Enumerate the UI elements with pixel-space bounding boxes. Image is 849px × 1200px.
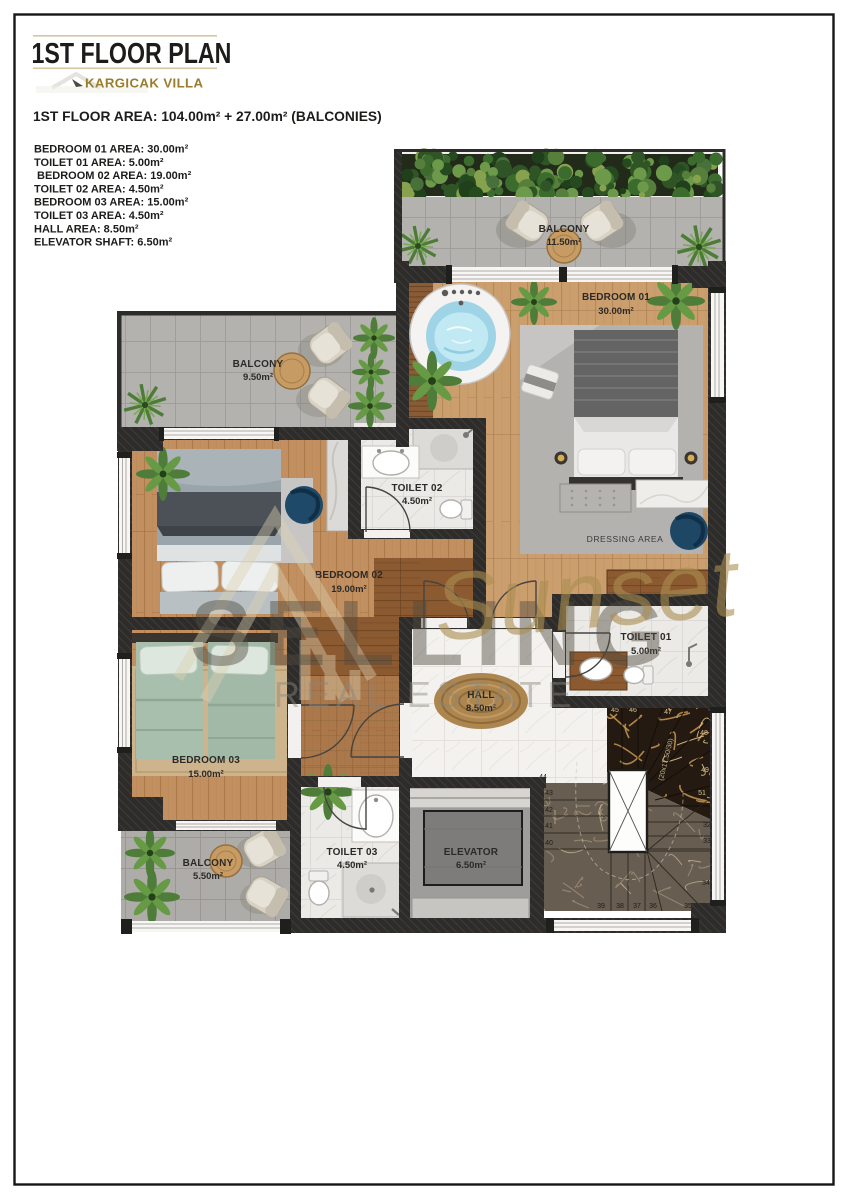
svg-text:BALCONY: BALCONY [183,858,234,869]
svg-text:4.50m²: 4.50m² [337,860,367,871]
svg-text:40: 40 [545,840,553,847]
svg-text:42: 42 [545,807,553,814]
svg-text:46: 46 [629,707,637,714]
svg-text:TOILET 02 AREA: 4.50m²: TOILET 02 AREA: 4.50m² [34,183,164,195]
svg-text:36: 36 [649,903,657,910]
svg-text:34: 34 [702,880,710,887]
svg-text:11.50m²: 11.50m² [547,237,582,248]
svg-text:37: 37 [633,903,641,910]
svg-text:BEDROOM 03: BEDROOM 03 [172,755,240,766]
svg-text:45: 45 [611,707,619,714]
svg-text:38: 38 [616,903,624,910]
svg-text:HALL AREA: 8.50m²: HALL AREA: 8.50m² [34,223,139,235]
svg-text:TOILET 01 AREA: 5.00m²: TOILET 01 AREA: 5.00m² [34,157,164,169]
svg-text:1ST FLOOR PLAN: 1ST FLOOR PLAN [32,37,232,70]
svg-text:51: 51 [698,790,706,797]
svg-text:TOILET 03: TOILET 03 [326,847,377,858]
svg-text:39: 39 [597,903,605,910]
svg-text:49: 49 [701,767,709,774]
svg-text:BEDROOM 01: BEDROOM 01 [582,292,650,303]
svg-text:9.50m²: 9.50m² [243,372,273,383]
svg-text:32: 32 [703,822,711,829]
svg-text:5.50m²: 5.50m² [193,871,223,882]
svg-text:BEDROOM 02 AREA: 19.00m²: BEDROOM 02 AREA: 19.00m² [37,170,192,182]
svg-text:6.50m²: 6.50m² [456,860,486,871]
svg-text:35: 35 [684,903,692,910]
svg-text:TOILET 02: TOILET 02 [391,483,442,494]
svg-text:33: 33 [703,838,711,845]
svg-text:15.00m²: 15.00m² [188,769,223,780]
svg-text:BEDROOM 03 AREA: 15.00m²: BEDROOM 03 AREA: 15.00m² [34,197,189,209]
svg-text:KARGICAK VILLA: KARGICAK VILLA [85,76,203,91]
svg-text:1ST FLOOR AREA: 104.00m² + 27.: 1ST FLOOR AREA: 104.00m² + 27.00m² (BALC… [33,109,382,124]
svg-text:TOILET 03 AREA: 4.50m²: TOILET 03 AREA: 4.50m² [34,210,164,222]
svg-text:4.50m²: 4.50m² [402,496,432,507]
svg-text:41: 41 [545,823,553,830]
svg-text:ELEVATOR: ELEVATOR [444,847,499,858]
svg-text:30.00m²: 30.00m² [598,306,633,317]
svg-text:ELEVATOR SHAFT: 6.50m²: ELEVATOR SHAFT: 6.50m² [34,237,172,249]
svg-text:REAL ESTATE: REAL ESTATE [274,674,577,715]
svg-text:BEDROOM 01 AREA: 30.00m²: BEDROOM 01 AREA: 30.00m² [34,144,189,156]
svg-text:48: 48 [700,730,708,737]
svg-text:BEDROOM 02: BEDROOM 02 [315,570,383,581]
svg-text:BALCONY: BALCONY [539,224,590,235]
svg-text:BALCONY: BALCONY [233,359,284,370]
svg-text:47: 47 [664,709,672,716]
svg-text:43: 43 [545,790,553,797]
